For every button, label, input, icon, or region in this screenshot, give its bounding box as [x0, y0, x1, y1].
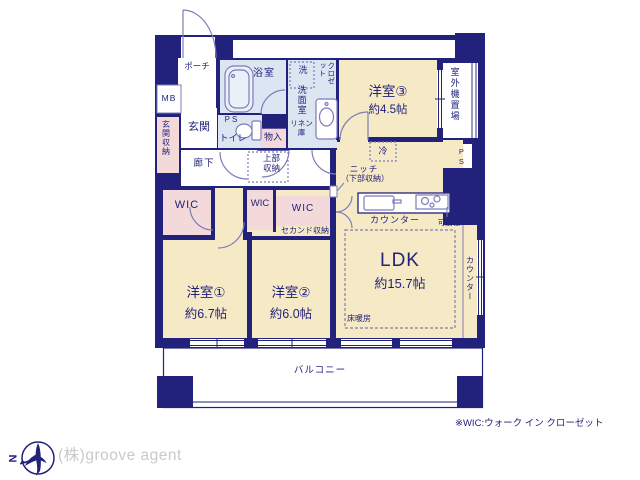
- bedroom2-name-label: 洋室②: [262, 285, 320, 301]
- floor-heating-label: 床暖房: [347, 314, 371, 323]
- ldk-name-label: LDK: [370, 250, 430, 272]
- bedroom2-size-label: 約6.0帖: [259, 307, 323, 322]
- compass-logo: [20, 442, 54, 476]
- porch-label: ポーチ: [180, 61, 214, 71]
- balcony: [157, 348, 483, 408]
- bedroom1-name-label: 洋室①: [177, 285, 235, 301]
- movable-shelf-label: 可動棚: [433, 219, 465, 228]
- balcony-pillar-left: [157, 376, 193, 408]
- kitchen-counter-label: カウンター: [370, 215, 416, 226]
- entrance-label: 玄関: [183, 121, 215, 134]
- wic2-label: WIC: [248, 198, 272, 209]
- bedroom3-name-label: 洋室③: [360, 84, 416, 100]
- closet-label: クロゼット: [317, 62, 335, 88]
- side-counter-label: カウンター: [465, 256, 474, 302]
- niche-box: [330, 186, 337, 197]
- balcony-pillar-right: [457, 376, 483, 408]
- washer-label: 洗: [297, 65, 309, 76]
- wic3-label: WIC: [285, 203, 321, 215]
- bedroom3-size-label: 約4.5帖: [360, 104, 416, 118]
- entrance-storage-label: 玄関収納: [161, 120, 170, 172]
- wic2-area: [247, 190, 273, 230]
- meter-box-label: MB: [158, 93, 180, 103]
- wic1-label: WIC: [167, 199, 207, 212]
- storage-label: 物入: [259, 132, 287, 143]
- outdoor-unit-label: 室外機置場: [449, 67, 460, 139]
- wic-footnote: ※WIC:ウォーク イン クローゼット: [455, 418, 603, 429]
- niche-sub-label: （下部収納）: [334, 174, 396, 183]
- bedroom1-size-label: 約6.7帖: [174, 307, 238, 322]
- second-storage-label: セカンド収納: [279, 226, 331, 235]
- toilet-label: トイレ: [219, 133, 247, 144]
- ps-right-label: PS: [456, 147, 465, 167]
- linen-label: リネン庫: [289, 120, 314, 138]
- ps-toilet-label: PS: [221, 115, 243, 124]
- balcony-label: バルコニー: [288, 365, 352, 376]
- compass-north-letter: N: [7, 455, 20, 463]
- company-name: (株)groove agent: [58, 447, 182, 465]
- hallway-label: 廊下: [189, 158, 219, 169]
- ldk-size-label: 約15.7帖: [366, 276, 434, 291]
- fridge-label: 冷: [374, 146, 392, 157]
- bedroom3-area: [337, 60, 437, 140]
- upper-storage-label: 上部収納: [262, 153, 281, 173]
- niche-label: ニッチ: [346, 164, 382, 174]
- bath-label: 浴室: [248, 68, 280, 80]
- floor-plan-image: ポーチ MB 玄関 玄関収納 廊下 浴室 PS トイレ 物入 洗 洗面室 リネン…: [0, 0, 640, 480]
